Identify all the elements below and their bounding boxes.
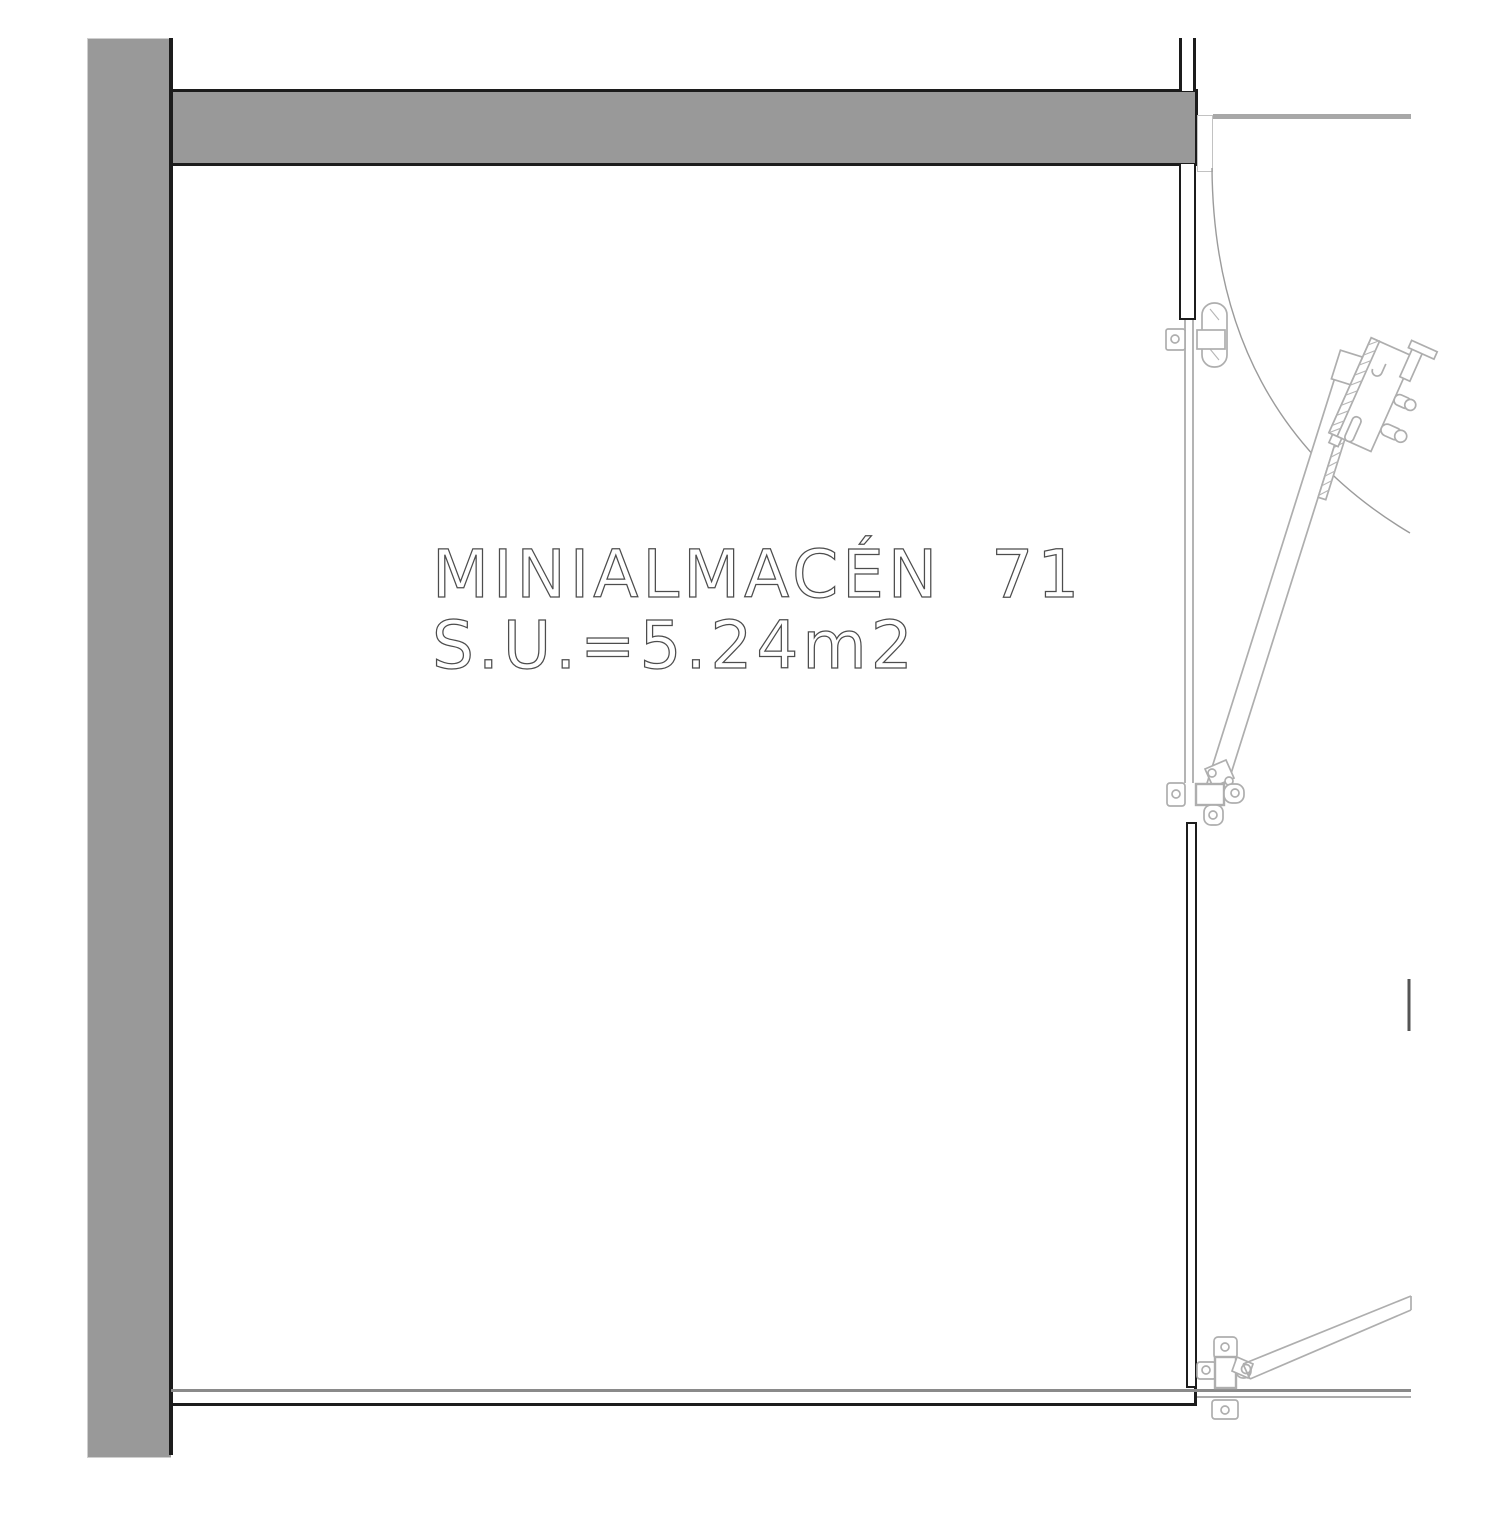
wall-tick [1408, 979, 1411, 1031]
bottom-hinge-icon [1197, 1337, 1253, 1419]
top-hinge-icon [1166, 303, 1227, 367]
plan-linework: MINIALMACÉN 71 S.U.=5.24m2 [0, 0, 1496, 1514]
room-label: MINIALMACÉN 71 [432, 535, 1083, 613]
floor-plan: MINIALMACÉN 71 S.U.=5.24m2 [0, 0, 1496, 1514]
area-label: S.U.=5.24m2 [432, 607, 917, 684]
door-leaf-adjacent [1243, 1296, 1411, 1379]
